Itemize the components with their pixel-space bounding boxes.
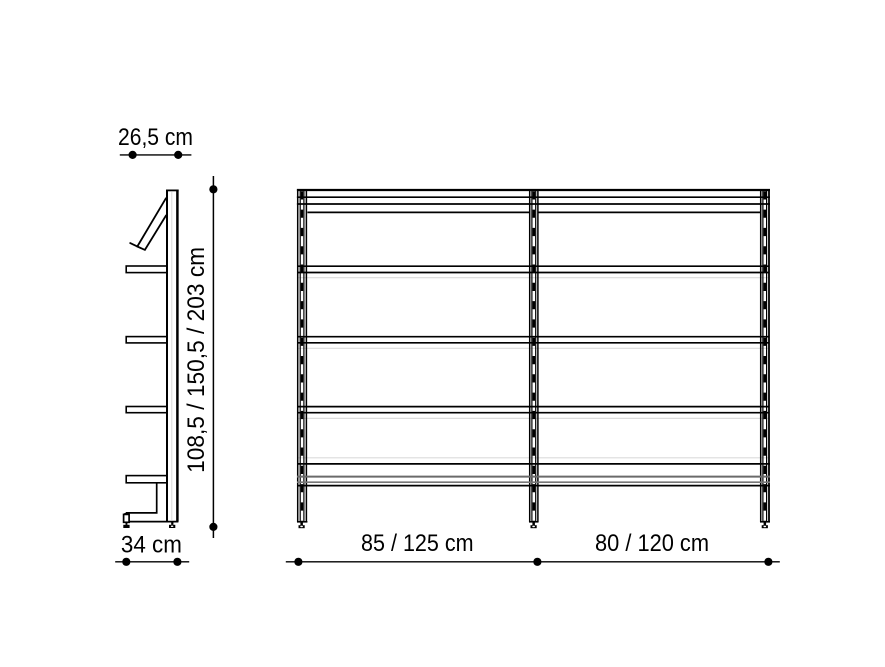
svg-text:26,5 cm: 26,5 cm xyxy=(118,124,193,151)
svg-text:34 cm: 34 cm xyxy=(121,532,182,559)
svg-text:108,5 / 150,5 / 203 cm: 108,5 / 150,5 / 203 cm xyxy=(183,247,210,473)
svg-text:80 / 120 cm: 80 / 120 cm xyxy=(595,530,709,557)
svg-text:85 / 125 cm: 85 / 125 cm xyxy=(361,530,474,557)
